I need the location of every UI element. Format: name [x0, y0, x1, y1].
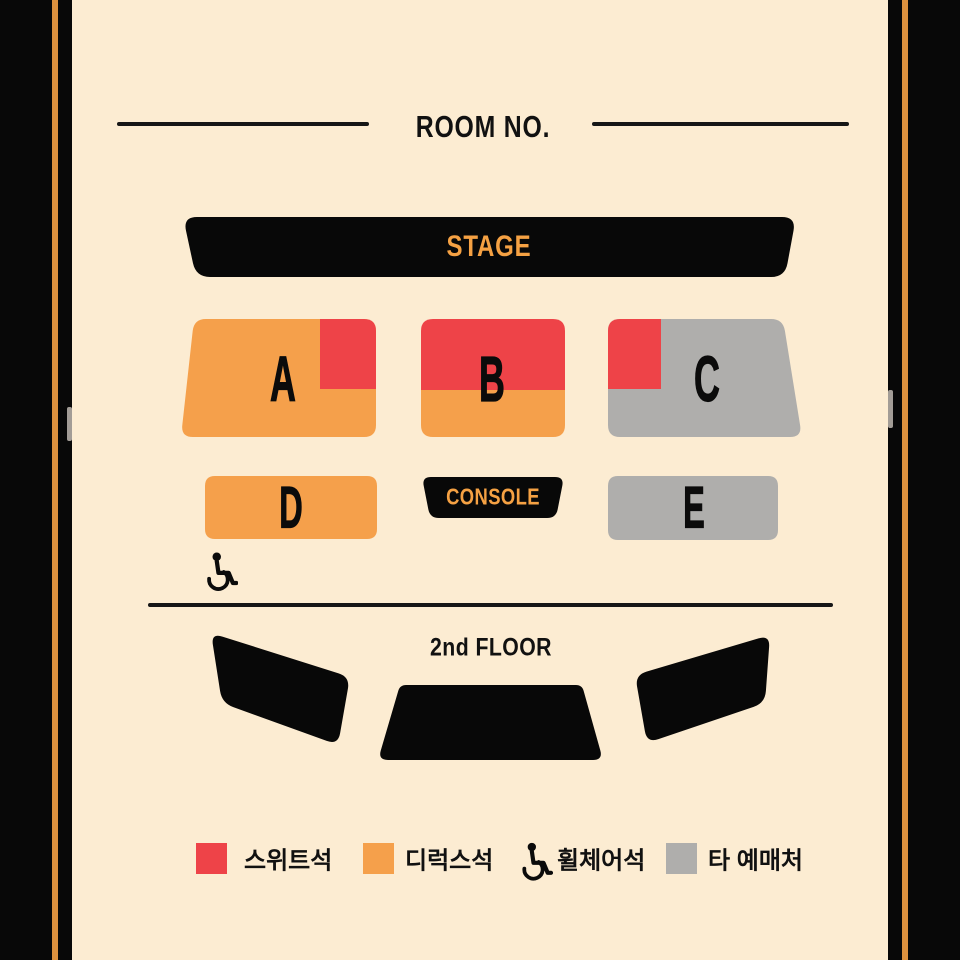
second-floor-label: 2nd FLOOR [430, 634, 552, 663]
wheelchair-icon [519, 842, 553, 882]
balcony-right-shape [637, 638, 769, 740]
floor-divider [148, 603, 833, 607]
section-a-letter: A [270, 342, 296, 416]
section-a-suite-overlay[interactable] [320, 319, 376, 389]
section-c-suite-overlay[interactable] [608, 319, 661, 389]
balcony-center-shape [380, 685, 601, 760]
console-label: CONSOLE [446, 484, 540, 511]
legend-label-deluxe: 디럭스석 [405, 841, 493, 876]
wheelchair-icon [204, 551, 238, 593]
legend-label-suite: 스위트석 [244, 841, 332, 876]
section-d-letter: D [279, 475, 302, 542]
section-b-letter: B [479, 342, 505, 416]
balcony-left-shape [213, 636, 349, 742]
seat-map-shapes [0, 0, 960, 960]
stage-label: STAGE [447, 230, 532, 264]
legend-label-wheelchair: 휠체어석 [557, 841, 645, 876]
section-e-letter: E [683, 475, 705, 542]
deluxe-orange-swatch [363, 843, 394, 874]
section-c-letter: C [694, 342, 720, 416]
suite-red-swatch [196, 843, 227, 874]
seat-map-page: ROOM NO. STAGE A B C D CONSOLE E 2nd FLO… [0, 0, 960, 960]
legend-label-other-vendor: 타 예매처 [708, 841, 803, 876]
other-vendor-gray-swatch [666, 843, 697, 874]
